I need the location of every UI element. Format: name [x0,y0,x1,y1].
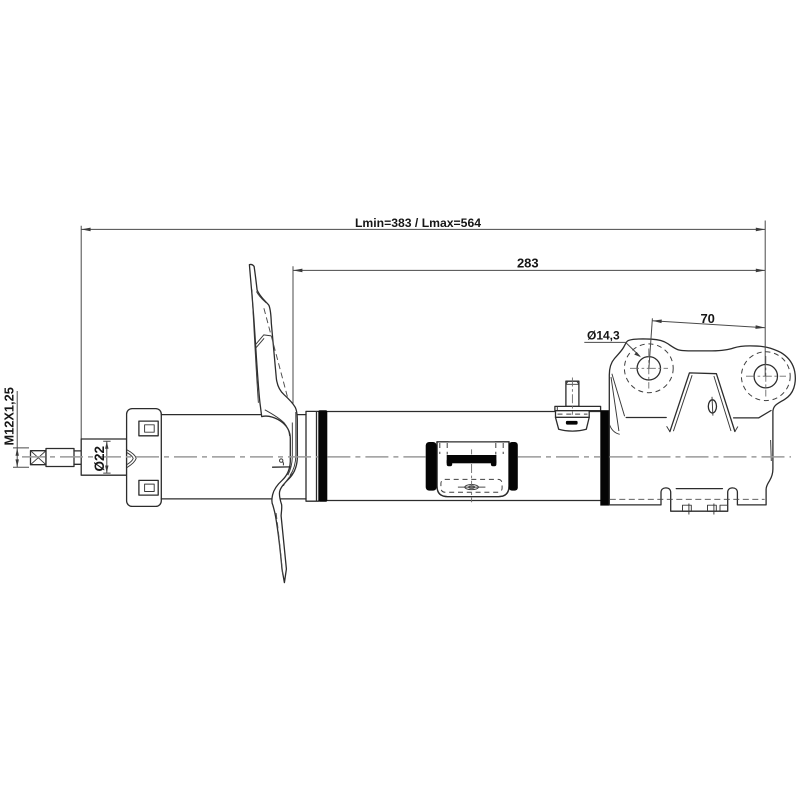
svg-text:Ø14,3: Ø14,3 [587,328,620,342]
svg-text:Lmin=383 / Lmax=564: Lmin=383 / Lmax=564 [355,216,481,230]
svg-text:70: 70 [700,311,714,326]
svg-text:M12X1,25: M12X1,25 [1,387,16,445]
svg-text:283: 283 [517,256,539,271]
svg-text:Ø22: Ø22 [92,446,107,472]
